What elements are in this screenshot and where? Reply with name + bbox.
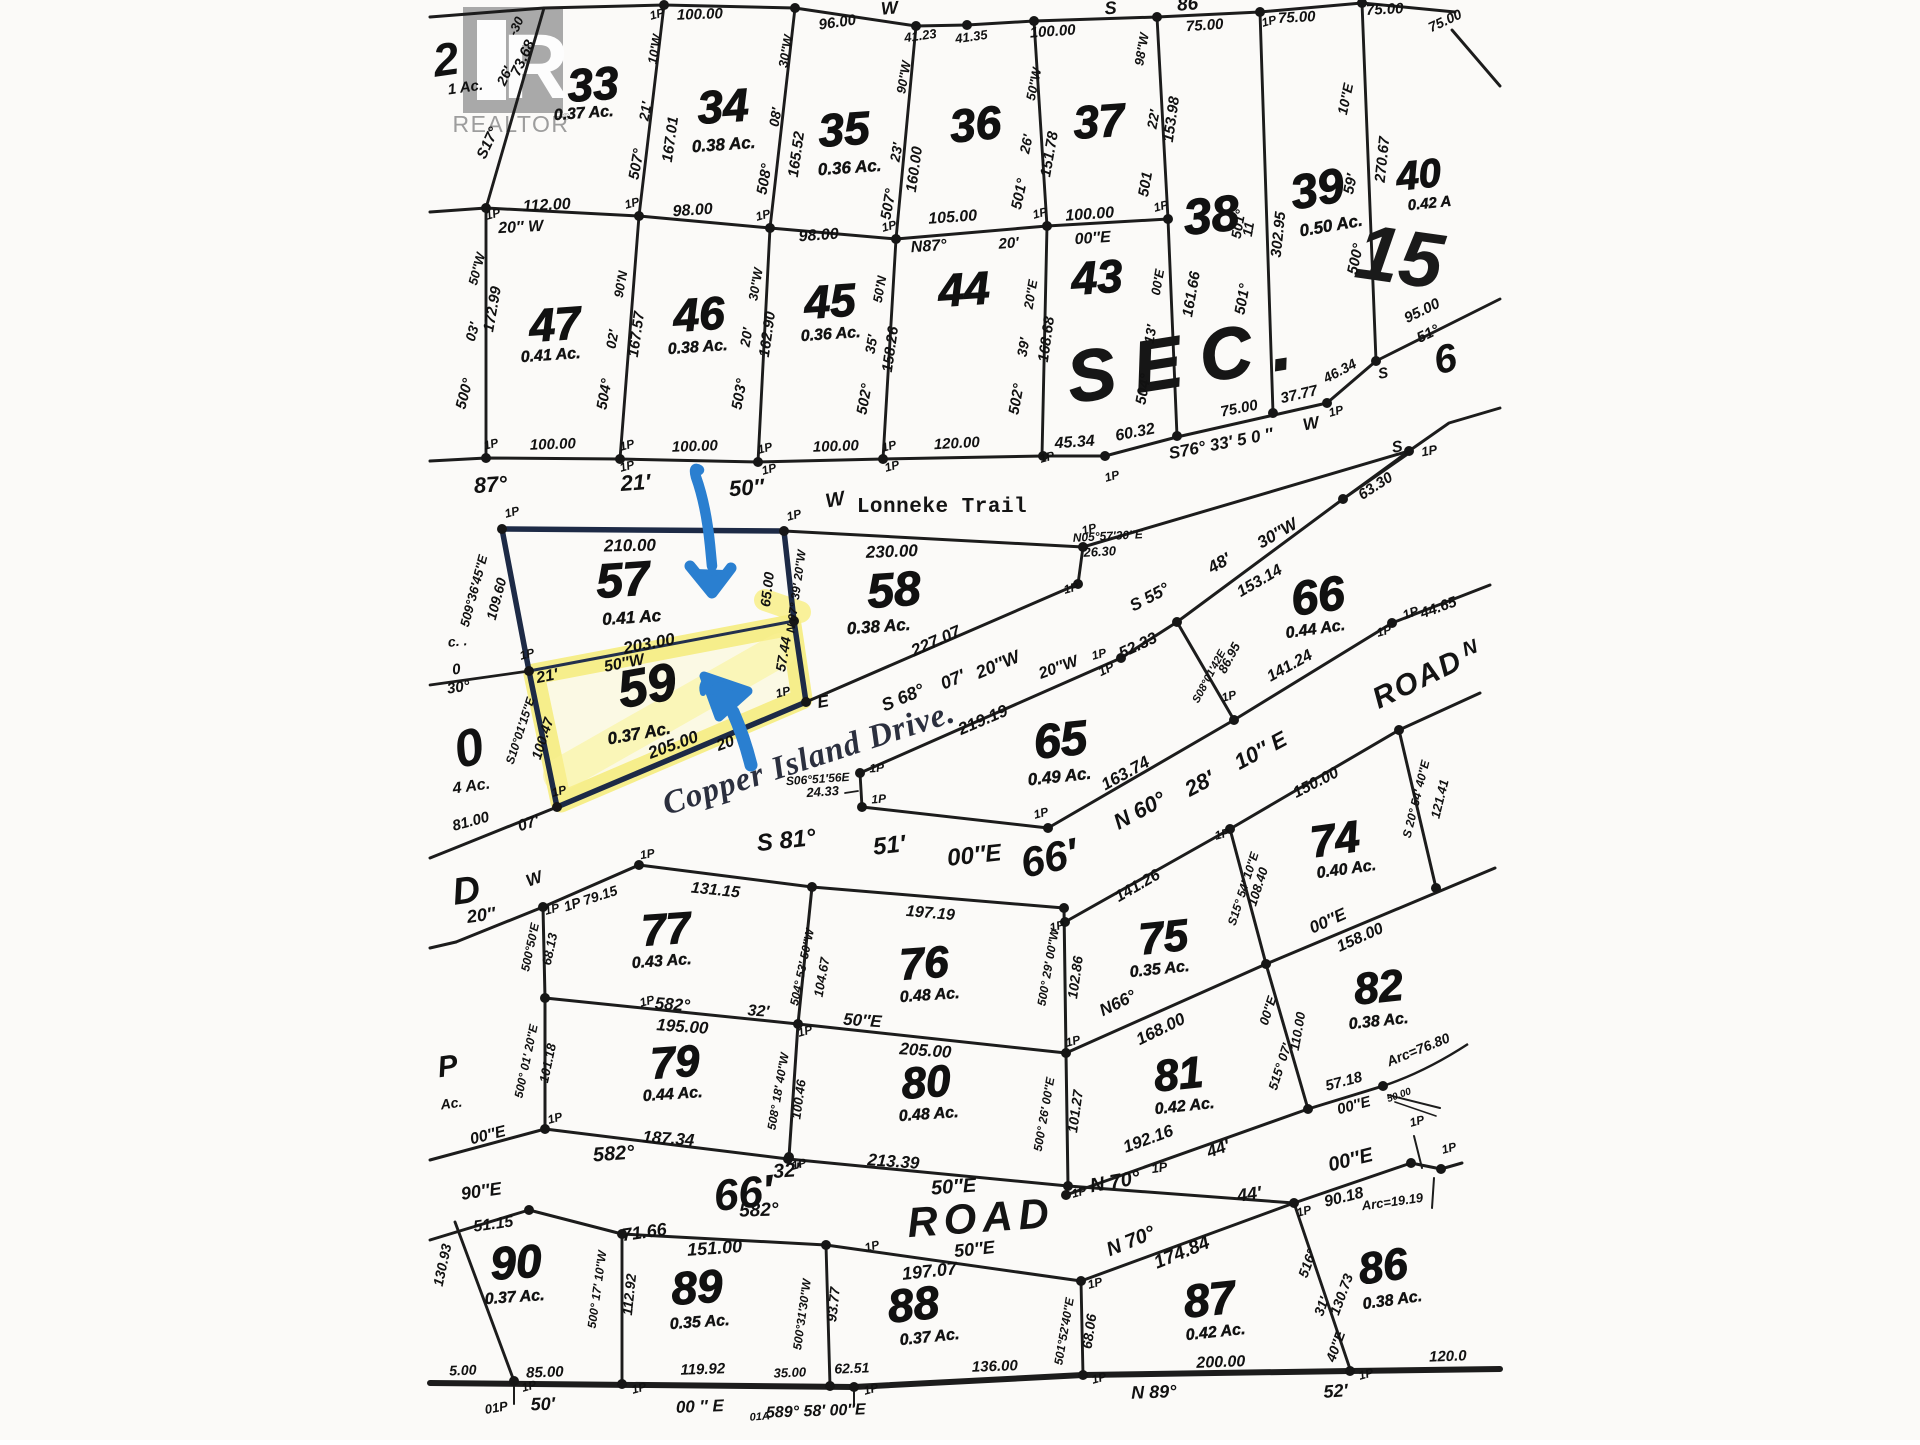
svg-text:200.00: 200.00 (1195, 1353, 1246, 1372)
svg-text:08′: 08′ (766, 106, 785, 128)
svg-text:100.00: 100.00 (813, 437, 860, 456)
svg-text:89: 89 (670, 1259, 725, 1314)
svg-text:1P: 1P (869, 760, 886, 775)
svg-text:34: 34 (696, 78, 751, 133)
svg-text:100.00: 100.00 (1065, 204, 1115, 224)
svg-text:58: 58 (865, 562, 922, 619)
svg-text:62.51: 62.51 (834, 1359, 870, 1376)
svg-text:35′: 35′ (862, 333, 881, 355)
svg-text:39: 39 (1286, 159, 1348, 221)
svg-text:205.00: 205.00 (898, 1039, 953, 1062)
svg-text:90: 90 (489, 1234, 544, 1289)
svg-text:98.00: 98.00 (672, 201, 713, 221)
svg-text:Ac.: Ac. (438, 1094, 463, 1113)
svg-text:1P: 1P (1150, 1159, 1168, 1176)
svg-text:S: S (1104, 0, 1117, 18)
svg-text:45: 45 (802, 273, 859, 329)
svg-text:80: 80 (900, 1056, 953, 1108)
svg-text:20″ W: 20″ W (497, 218, 546, 237)
svg-text:50″: 50″ (728, 474, 766, 501)
svg-text:112.00: 112.00 (522, 196, 571, 215)
svg-text:75.00: 75.00 (1366, 0, 1405, 19)
svg-text:100.00: 100.00 (530, 435, 577, 454)
svg-text:32′: 32′ (747, 1002, 771, 1021)
svg-text:210.00: 210.00 (603, 536, 657, 556)
svg-text:36: 36 (947, 96, 1004, 153)
svg-text:87°: 87° (473, 471, 508, 498)
svg-text:37: 37 (1072, 93, 1129, 149)
svg-text:1P: 1P (871, 791, 888, 806)
svg-text:24.33: 24.33 (805, 783, 840, 800)
svg-text:44′: 44′ (1235, 1182, 1264, 1205)
svg-text:47: 47 (527, 296, 585, 352)
svg-text:100.00: 100.00 (677, 5, 724, 24)
svg-text:51′: 51′ (872, 830, 908, 860)
svg-text:46: 46 (671, 286, 727, 342)
svg-text:86: 86 (1176, 0, 1199, 16)
svg-text:87: 87 (1181, 1270, 1240, 1327)
svg-text:00″E: 00″E (1074, 229, 1113, 249)
svg-text:1P: 1P (1420, 442, 1439, 460)
svg-text:100.00: 100.00 (672, 437, 719, 456)
svg-text:79: 79 (649, 1036, 702, 1088)
svg-text:105.00: 105.00 (928, 207, 978, 227)
svg-text:35: 35 (817, 101, 873, 157)
svg-text:50″E: 50″E (843, 1010, 883, 1032)
svg-text:00 ″ E: 00 ″ E (676, 1396, 725, 1417)
svg-text:230.00: 230.00 (864, 541, 918, 562)
svg-text:75: 75 (1137, 911, 1191, 965)
svg-text:20′: 20′ (997, 234, 1021, 253)
svg-text:00″E: 00″E (946, 839, 1004, 872)
svg-text:187.34: 187.34 (642, 1127, 696, 1150)
svg-text:76: 76 (898, 937, 951, 989)
svg-text:88: 88 (885, 1276, 942, 1333)
svg-text:582°: 582° (654, 994, 691, 1015)
svg-text:02′: 02′ (603, 328, 622, 350)
svg-text:15: 15 (1351, 207, 1451, 306)
svg-text:195.00: 195.00 (656, 1015, 710, 1038)
svg-text:N 89°: N 89° (1131, 1381, 1178, 1403)
svg-text:120.0: 120.0 (1429, 1347, 1468, 1365)
svg-text:582°: 582° (592, 1142, 636, 1167)
svg-text:119.92: 119.92 (680, 1360, 726, 1379)
svg-text:43: 43 (1069, 249, 1125, 305)
svg-text:50′: 50′ (530, 1394, 556, 1415)
svg-text:151.00: 151.00 (686, 1236, 742, 1260)
svg-text:35.00: 35.00 (773, 1364, 807, 1380)
svg-text:98.00: 98.00 (798, 226, 839, 246)
svg-text:75.00: 75.00 (1278, 8, 1317, 27)
svg-text:26.30: 26.30 (1082, 543, 1117, 560)
svg-text:82: 82 (1352, 961, 1406, 1015)
svg-text:c. .: c. . (447, 632, 468, 650)
svg-text:65: 65 (1031, 711, 1091, 769)
svg-text:81: 81 (1152, 1048, 1206, 1102)
svg-text:582°: 582° (739, 1199, 779, 1221)
svg-text:44: 44 (936, 261, 992, 317)
svg-text:77: 77 (640, 903, 695, 955)
svg-text:45.34: 45.34 (1053, 433, 1095, 453)
svg-text:75.00: 75.00 (1185, 16, 1224, 36)
svg-text:40: 40 (1393, 151, 1443, 200)
svg-text:Lonneke Trail: Lonneke Trail (857, 496, 1027, 519)
svg-text:5.00: 5.00 (449, 1362, 477, 1379)
svg-text:30°: 30° (446, 677, 472, 697)
svg-text:120.00: 120.00 (933, 434, 980, 453)
svg-text:39′: 39′ (1014, 336, 1033, 358)
svg-text:20″: 20″ (465, 903, 499, 927)
svg-text:57: 57 (594, 552, 653, 609)
svg-text:589° 58′ 00″E: 589° 58′ 00″E (766, 1401, 868, 1422)
svg-text:100.00: 100.00 (1029, 21, 1077, 41)
svg-text:13′: 13′ (1141, 323, 1160, 345)
svg-text:52′: 52′ (1323, 1380, 1349, 1402)
svg-text:213.39: 213.39 (866, 1150, 921, 1173)
svg-text:86: 86 (1355, 1239, 1411, 1294)
svg-text:50″E: 50″E (930, 1174, 977, 1199)
svg-text:136.00: 136.00 (972, 1357, 1019, 1376)
svg-text:N87°: N87° (910, 237, 947, 256)
